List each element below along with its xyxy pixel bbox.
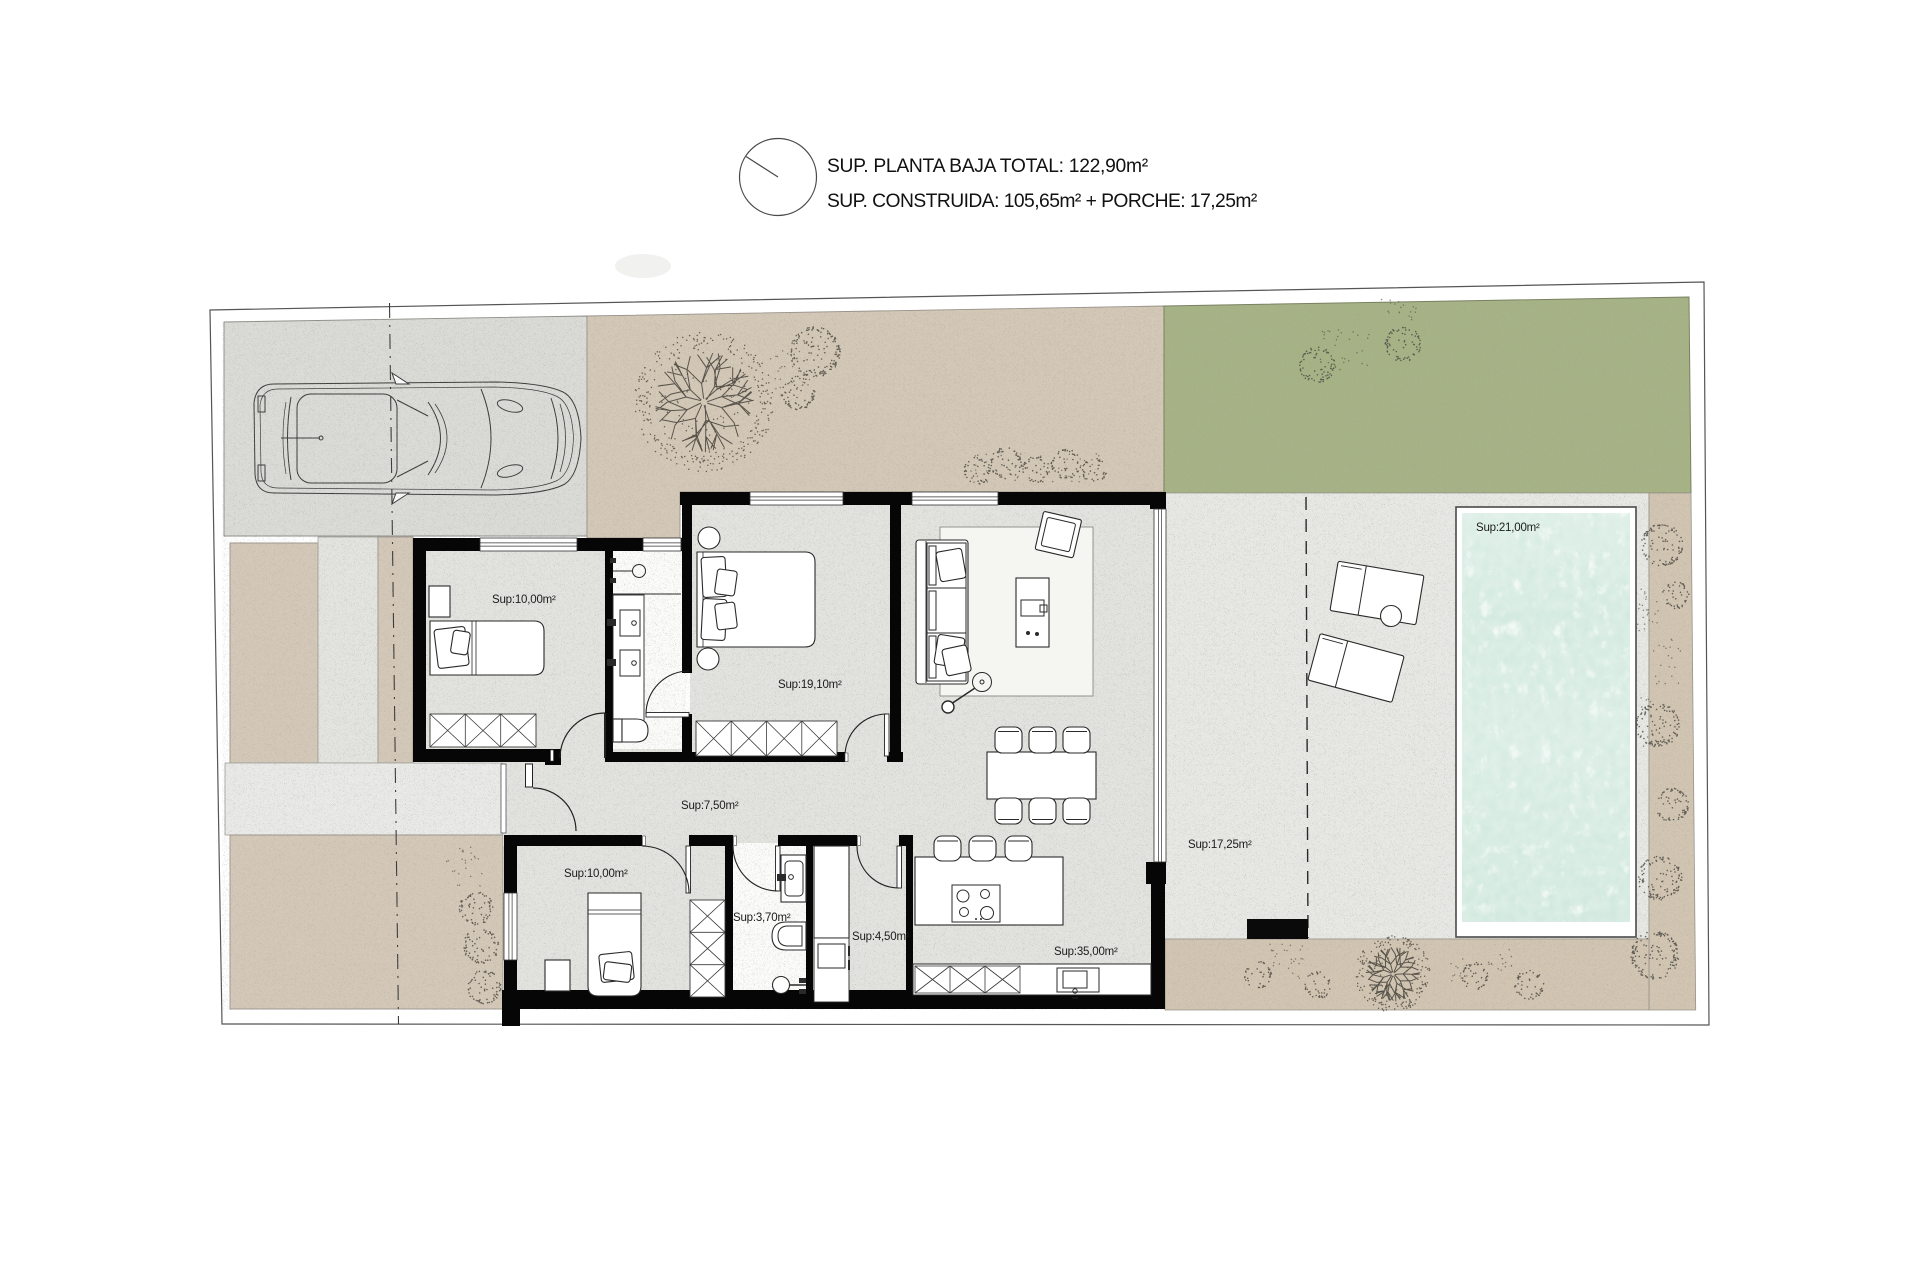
svg-text:Sup:17,25m²: Sup:17,25m² bbox=[1188, 839, 1252, 851]
svg-text:Sup:4,50m²: Sup:4,50m² bbox=[852, 931, 910, 943]
svg-text:Sup:19,10m²: Sup:19,10m² bbox=[778, 679, 842, 691]
svg-text:Sup:21,00m²: Sup:21,00m² bbox=[1476, 522, 1540, 534]
svg-text:SUP. PLANTA BAJA TOTAL: 122,90: SUP. PLANTA BAJA TOTAL: 122,90m² bbox=[827, 156, 1149, 177]
svg-text:Sup:35,00m²: Sup:35,00m² bbox=[1054, 946, 1118, 958]
svg-text:SUP. CONSTRUIDA: 105,65m² + PO: SUP. CONSTRUIDA: 105,65m² + PORCHE: 17,2… bbox=[827, 191, 1258, 212]
svg-text:Sup:10,00m²: Sup:10,00m² bbox=[564, 868, 628, 880]
svg-text:Sup:3,70m²: Sup:3,70m² bbox=[733, 912, 791, 924]
svg-text:Sup:7,50m²: Sup:7,50m² bbox=[681, 800, 739, 812]
svg-text:Sup:10,00m²: Sup:10,00m² bbox=[492, 594, 556, 606]
